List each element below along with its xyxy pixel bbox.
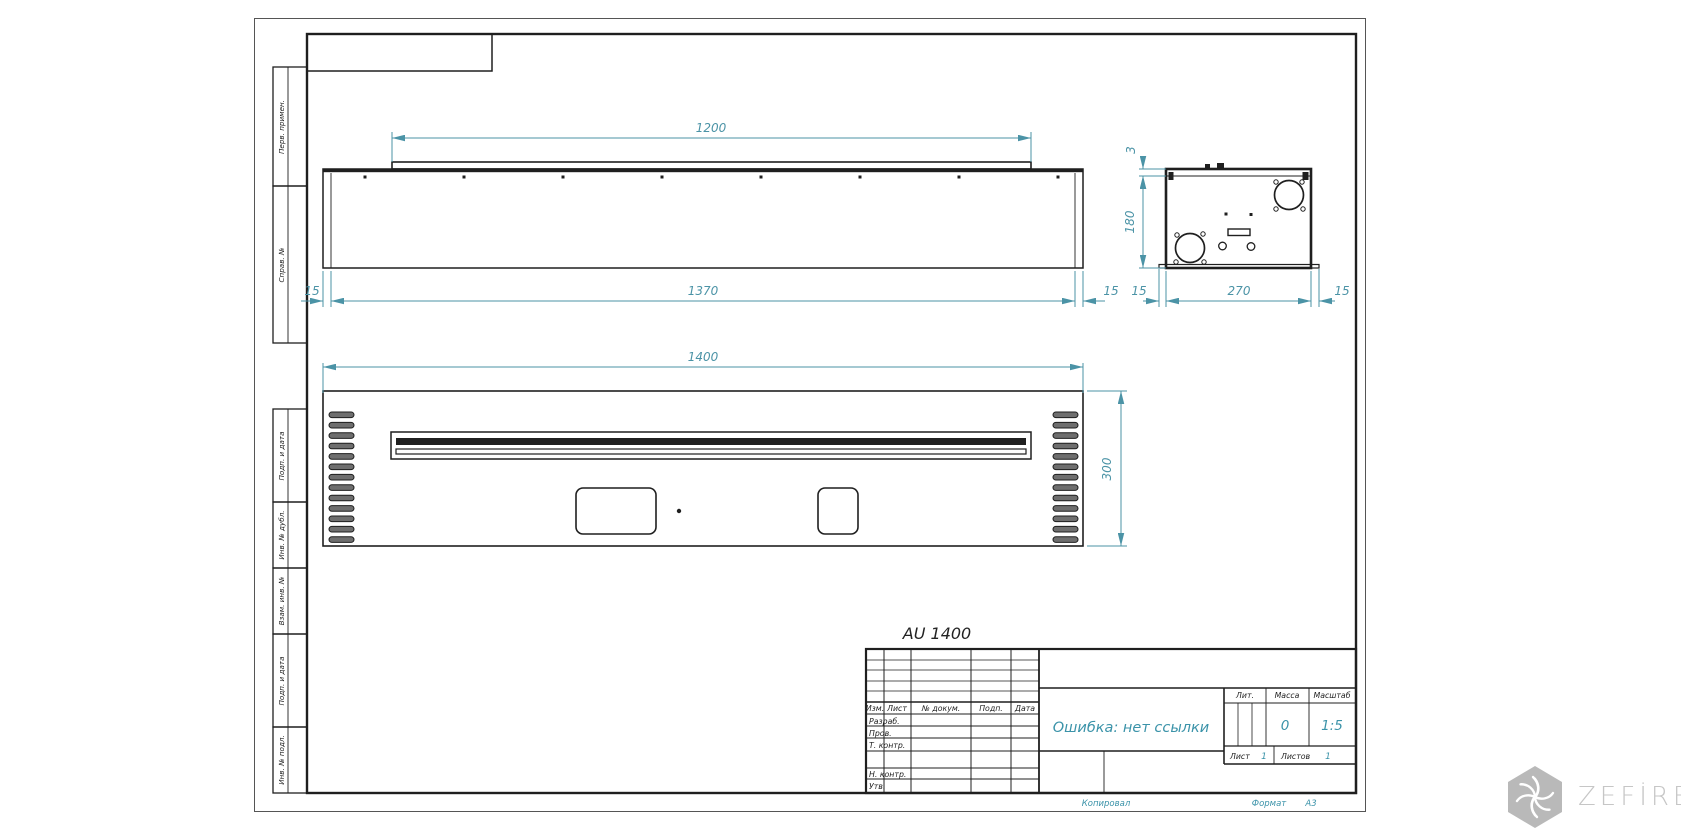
tb-col-izm: Изм.: [866, 704, 884, 713]
tb-row-utv: Утв.: [869, 782, 885, 791]
tb-col-list: Лист: [886, 704, 907, 713]
tb-mass-value: 0: [1281, 718, 1290, 734]
dim-side-margin-left: 15: [1131, 284, 1146, 298]
tb-sheet-label: Лист: [1229, 752, 1250, 761]
drawing-sheet: Перв. примен. Справ. № Подп. и дата Инв.…: [254, 18, 1366, 812]
tb-col-podp: Подп.: [979, 704, 1003, 713]
dim-front-height: 300: [1100, 457, 1114, 480]
tb-col-data: Дата: [1014, 704, 1035, 713]
dim-front-width: 1400: [688, 350, 719, 364]
tb-scale-label: Масштаб: [1313, 691, 1350, 700]
front-view-dimensions: 1400 300: [323, 350, 1127, 546]
footer-notes: Копировал Формат А3: [1082, 799, 1317, 809]
dim-top-flange: 1200: [696, 121, 727, 135]
tb-row-prov: Пров.: [869, 729, 892, 738]
margin-strip: Перв. примен. Справ. № Подп. и дата Инв.…: [273, 67, 307, 793]
dim-top-body: 1370: [688, 284, 719, 298]
dim-top-margin-right: 15: [1103, 284, 1118, 298]
tb-doc-name: Ошибка: нет ссылки: [1053, 720, 1209, 736]
tb-row-razrab: Разраб.: [869, 717, 900, 726]
top-view-dimensions: 1200 15 1370 15: [301, 121, 1119, 307]
top-left-designation-box: [307, 34, 492, 71]
dim-side-margin-right: 15: [1334, 284, 1349, 298]
page: Перв. примен. Справ. № Подп. и дата Инв.…: [0, 0, 1681, 831]
footer-format-label: Формат: [1252, 799, 1288, 809]
tb-sheets-value: 1: [1325, 752, 1331, 762]
strip-label-vzam-inv: Взам. инв. №: [277, 577, 286, 626]
tb-col-dokum: № докум.: [921, 704, 960, 713]
front-view-left-vents: [329, 412, 354, 542]
strip-label-podp-data-2: Подп. и дата: [277, 657, 286, 706]
dim-top-margin-left: 15: [304, 284, 319, 298]
side-view-fan-top-right: [1274, 180, 1305, 211]
drawing-title: AU 1400: [902, 624, 971, 643]
dim-side-depth: 270: [1228, 284, 1251, 298]
footer-copied: Копировал: [1082, 799, 1131, 809]
zefire-watermark: ZEFİRE: [1504, 764, 1681, 830]
tb-row-nkontr: Н. контр.: [869, 770, 906, 779]
strip-label-perv-primen: Перв. примен.: [277, 100, 286, 154]
tb-sheet-value: 1: [1261, 752, 1267, 762]
front-view: [323, 391, 1083, 546]
strip-label-podp-data-1: Подп. и дата: [277, 432, 286, 481]
zefire-logo-icon: [1504, 764, 1566, 830]
tb-row-tkontr: Т. контр.: [869, 741, 905, 750]
top-view: [323, 162, 1083, 268]
side-view-dimensions: 3 180 15 270 15: [1123, 146, 1350, 307]
strip-label-inv-podl: Инв. № подл.: [277, 735, 286, 785]
front-view-burner-slot: [391, 432, 1031, 459]
front-view-cutout-large: [576, 488, 656, 534]
drawing-svg: Перв. примен. Справ. № Подп. и дата Инв.…: [255, 19, 1365, 811]
side-view-fan-bottom-left: [1174, 232, 1206, 264]
front-view-cutout-small: [818, 488, 858, 534]
dim-side-height: 180: [1123, 210, 1137, 233]
dim-side-deck: 3: [1124, 146, 1138, 154]
zefire-logo-text: ZEFİRE: [1578, 782, 1681, 812]
front-view-hole: [677, 509, 681, 513]
title-block: Изм. Лист № докум. Подп. Дата Разраб. Пр…: [866, 649, 1356, 793]
strip-label-sprav-no: Справ. №: [277, 248, 286, 283]
tb-lit-label: Лит.: [1235, 691, 1254, 700]
tb-sheets-label: Листов: [1280, 752, 1311, 761]
side-view: [1159, 163, 1319, 268]
strip-label-inv-dubl: Инв. № дубл.: [277, 510, 286, 559]
side-view-slot: [1228, 229, 1250, 236]
tb-scale-value: 1:5: [1321, 718, 1343, 734]
sheet-frame: [307, 34, 1356, 793]
tb-mass-label: Масса: [1275, 691, 1300, 700]
top-view-screw-holes: [364, 176, 1060, 179]
footer-format-value: А3: [1304, 799, 1316, 809]
front-view-right-vents: [1053, 412, 1078, 542]
